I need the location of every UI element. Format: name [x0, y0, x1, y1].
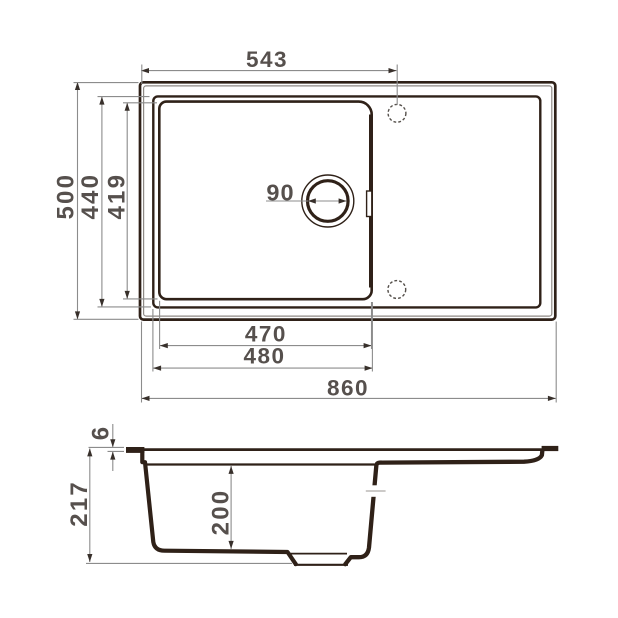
- svg-text:200: 200: [208, 489, 235, 536]
- svg-text:543: 543: [246, 47, 288, 72]
- svg-text:6: 6: [88, 425, 115, 441]
- svg-text:440: 440: [77, 173, 104, 220]
- svg-text:217: 217: [66, 480, 93, 527]
- svg-text:480: 480: [243, 344, 285, 369]
- svg-text:419: 419: [104, 173, 131, 220]
- svg-text:860: 860: [327, 376, 369, 401]
- svg-text:90: 90: [266, 180, 294, 206]
- svg-text:500: 500: [53, 173, 80, 220]
